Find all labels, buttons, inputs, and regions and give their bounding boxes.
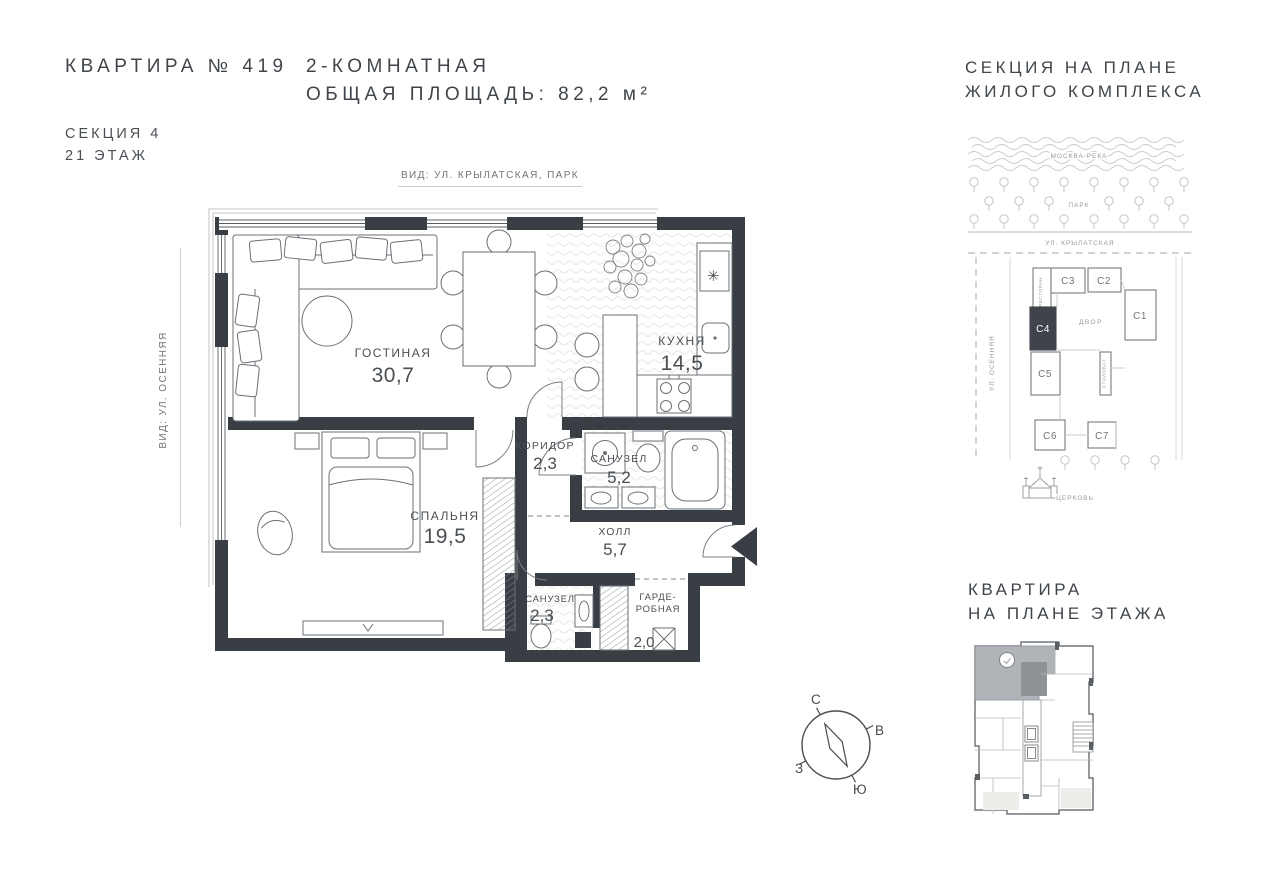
floor-map	[963, 628, 1108, 828]
room-area-corridor: 2,3	[533, 454, 557, 473]
window-top-dining	[427, 217, 507, 230]
kitchen-sink-icon	[702, 323, 729, 353]
compass-north: С	[811, 692, 821, 707]
room-area-wardrobe: 2,0	[634, 634, 655, 651]
bar-stool-icon	[575, 333, 599, 357]
dining-table-icon	[441, 230, 557, 388]
view-left-label: ВИД: УЛ. ОСЕННЯЯ	[158, 315, 176, 465]
compass: С В З Ю	[795, 688, 887, 798]
room-area-bathroom-big: 5,2	[607, 468, 631, 487]
window-left-bedroom	[215, 347, 228, 540]
compass-west: З	[795, 761, 803, 776]
highlighted-apartment-room	[1021, 662, 1047, 696]
bar-stool-icon	[575, 367, 599, 391]
fridge-icon: ✳	[700, 251, 729, 291]
rug-icon	[302, 296, 352, 346]
wardrobe-hatch-bedroom	[483, 478, 515, 630]
section-c2-label: С2	[1097, 276, 1111, 287]
floor-map-title: КВАРТИРА НА ПЛАНЕ ЭТАЖА	[968, 578, 1169, 626]
room-label-wardrobe-2: РОБНАЯ	[636, 604, 681, 615]
view-top-label: ВИД: УЛ. КРЫЛАТСКАЯ, ПАРК	[398, 170, 582, 187]
section-c1-label: С1	[1133, 311, 1147, 322]
apartment-floor-plan: ✳	[195, 195, 775, 675]
room-area-wc-small: 2,3	[530, 606, 554, 625]
room-label-wc-small: САНУЗЕЛ	[525, 594, 575, 605]
floorplan-page: КВАРТИРА № 419 2-КОМНАТНАЯ ОБЩАЯ ПЛОЩАДЬ…	[0, 0, 1263, 893]
apartment-marker-icon	[1000, 653, 1015, 668]
room-label-wardrobe-1: ГАРДЕ-	[639, 592, 676, 603]
restaurant-label: РЕСТОРАН	[1038, 277, 1044, 307]
armchair-icon	[253, 508, 297, 559]
site-plan-title: СЕКЦИЯ НА ПЛАНЕ ЖИЛОГО КОМПЛЕКСА	[965, 56, 1204, 104]
washbasin-small-icon	[575, 595, 593, 627]
window-left-living	[215, 235, 228, 273]
window-top-living	[219, 217, 365, 230]
section-c3-label: С3	[1061, 276, 1075, 287]
window-top-kitchen	[583, 217, 657, 230]
room-label-corridor: КОРИДОР	[515, 440, 574, 452]
section-c5-label: С5	[1038, 369, 1052, 380]
church-label: ЦЕРКОВЬ	[1056, 495, 1094, 502]
room-area-bedroom: 19,5	[424, 525, 467, 548]
shaft-icon	[653, 628, 675, 650]
river-label: МОСКВА РЕКА	[1050, 153, 1107, 160]
room-label-kitchen: КУХНЯ	[658, 334, 706, 348]
door-bedroom	[476, 430, 513, 467]
compass-needle-icon	[825, 724, 847, 766]
park-label: ПАРК	[1068, 202, 1089, 209]
fridge-star-symbol: ✳	[707, 268, 720, 285]
wardrobe-hatch-strip	[600, 586, 628, 650]
bottom-trees-icon	[1061, 456, 1159, 470]
floor-map-title-line2: НА ПЛАНЕ ЭТАЖА	[968, 602, 1169, 626]
floor-map-title-line1: КВАРТИРА	[968, 578, 1169, 602]
stove-icon	[657, 375, 691, 413]
compass-east: В	[875, 723, 884, 738]
section-c6-label: С6	[1043, 431, 1057, 442]
sofa-icon	[233, 235, 437, 421]
view-left-divider	[180, 248, 181, 527]
section-c4-label: С4	[1036, 324, 1050, 335]
site-plan-map: МОСКВА РЕКА ПАРК УЛ. КРЫЛАТСКАЯ УЛ. ОСЕН…	[958, 128, 1202, 520]
room-area-living: 30,7	[372, 364, 415, 387]
site-plan-title-line2: ЖИЛОГО КОМПЛЕКСА	[965, 80, 1204, 104]
door-entry	[703, 525, 735, 557]
room-label-living: ГОСТИНАЯ	[355, 346, 432, 360]
street-left-label: УЛ. ОСЕННЯЯ	[989, 335, 996, 391]
toilet-icon	[633, 431, 663, 472]
apartment-type: 2-КОМНАТНАЯ	[306, 56, 491, 78]
site-plan-title-line1: СЕКЦИЯ НА ПЛАНЕ	[965, 56, 1204, 80]
church-icon	[1023, 466, 1057, 498]
street-top-label: УЛ. КРЫЛАТСКАЯ	[1045, 240, 1114, 247]
stylobate-label: СТИЛОБАТ	[1102, 359, 1108, 388]
room-area-kitchen: 14,5	[661, 352, 704, 375]
courtyard-label: ДВОР	[1079, 319, 1103, 326]
room-label-bedroom: СПАЛЬНЯ	[410, 509, 479, 523]
bathtub-icon	[665, 431, 725, 509]
room-area-hall: 5,7	[603, 540, 627, 559]
apartment-area: ОБЩАЯ ПЛОЩАДЬ: 82,2 м²	[306, 84, 651, 106]
room-label-bathroom-big: САНУЗЕЛ	[590, 453, 647, 465]
room-label-hall: ХОЛЛ	[598, 526, 631, 538]
bedroom-console	[303, 621, 443, 635]
compass-south: Ю	[853, 782, 867, 797]
floor-label: 21 ЭТАЖ	[65, 148, 148, 164]
section-c7-label: С7	[1095, 431, 1109, 442]
buildings	[1030, 268, 1156, 450]
kitchen-island	[603, 315, 637, 417]
page-title: КВАРТИРА № 419	[65, 56, 288, 78]
section-label: СЕКЦИЯ 4	[65, 126, 161, 142]
